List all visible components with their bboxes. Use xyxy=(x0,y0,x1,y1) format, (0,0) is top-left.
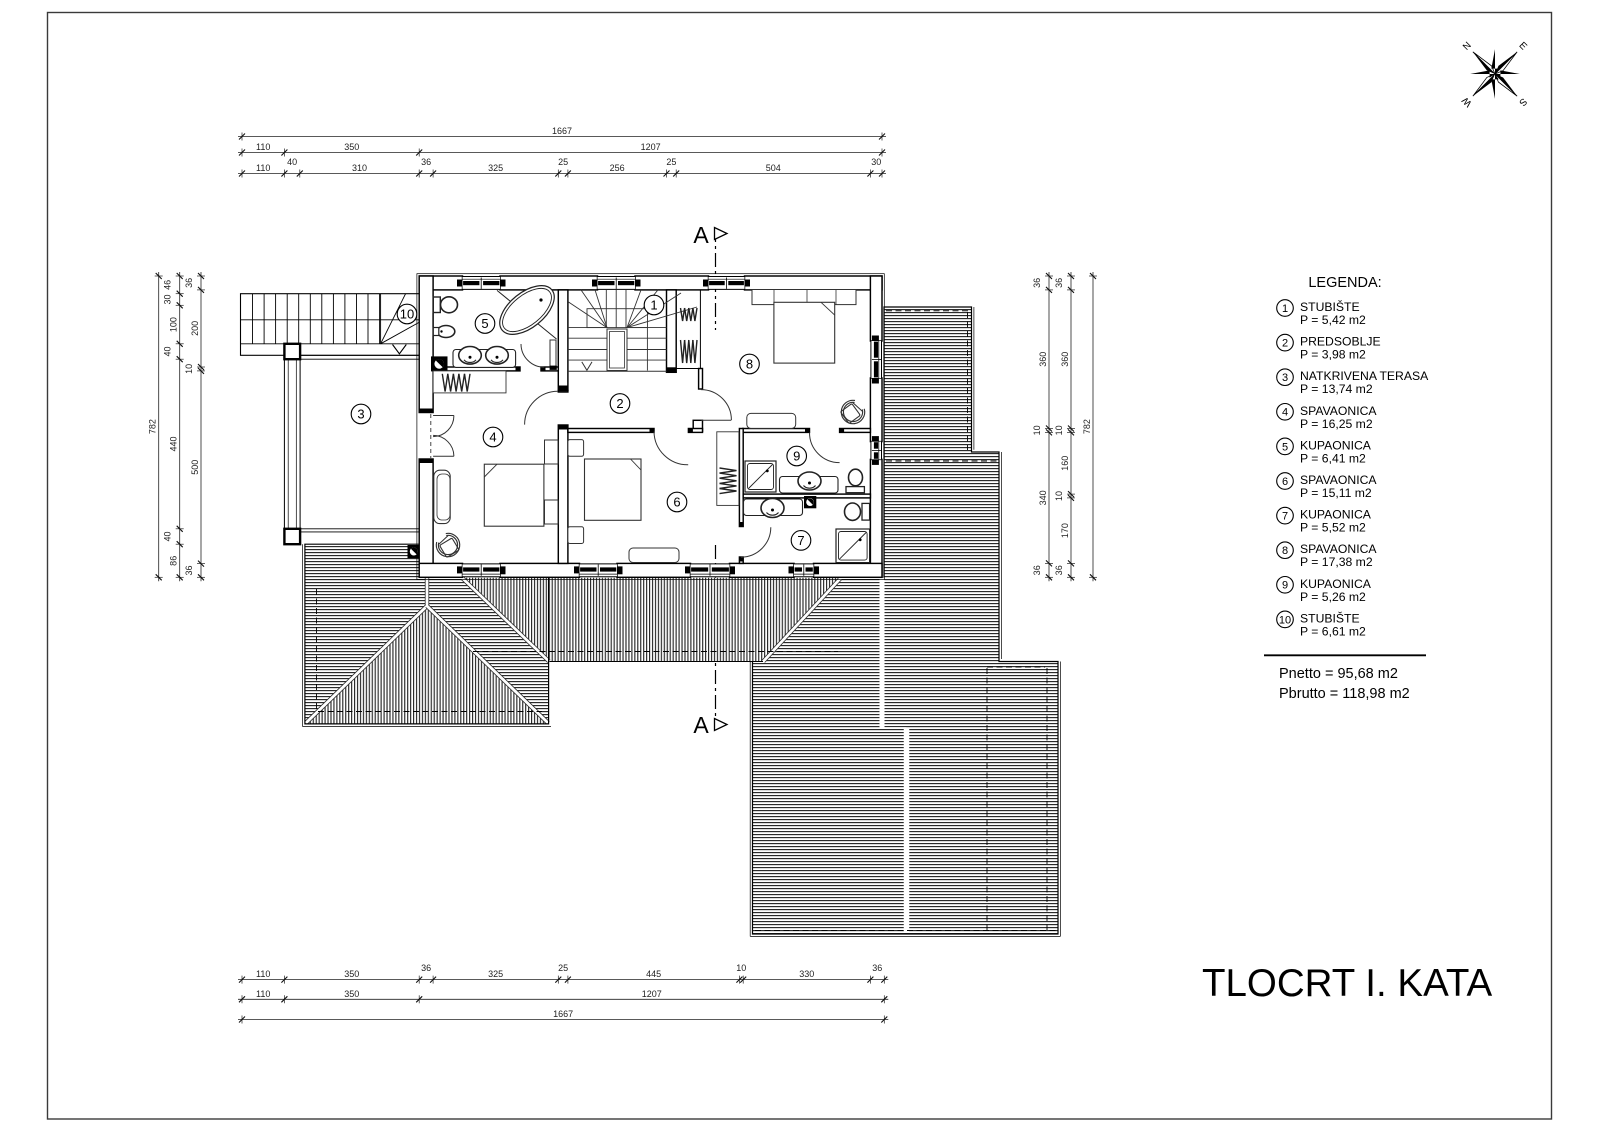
svg-text:10: 10 xyxy=(400,307,414,322)
svg-text:110: 110 xyxy=(256,989,270,999)
svg-text:3: 3 xyxy=(357,407,364,422)
svg-text:10: 10 xyxy=(736,963,746,973)
svg-text:500: 500 xyxy=(190,460,200,475)
svg-text:256: 256 xyxy=(610,163,625,173)
svg-text:10: 10 xyxy=(1032,425,1042,435)
svg-text:30: 30 xyxy=(163,294,173,304)
svg-text:782: 782 xyxy=(148,419,158,434)
svg-text:310: 310 xyxy=(352,163,367,173)
svg-text:3: 3 xyxy=(1282,372,1288,384)
svg-text:A: A xyxy=(693,712,709,738)
svg-text:25: 25 xyxy=(666,157,676,167)
svg-text:9: 9 xyxy=(1282,580,1288,592)
svg-text:36: 36 xyxy=(421,157,431,167)
svg-text:STUBIŠTE: STUBIŠTE xyxy=(1300,299,1360,314)
svg-text:10: 10 xyxy=(1279,614,1291,626)
svg-text:782: 782 xyxy=(1082,419,1092,434)
svg-text:445: 445 xyxy=(646,969,661,979)
svg-text:340: 340 xyxy=(1038,490,1048,505)
svg-text:36: 36 xyxy=(872,963,882,973)
svg-text:350: 350 xyxy=(344,989,359,999)
svg-text:P = 6,41 m2: P = 6,41 m2 xyxy=(1300,451,1366,465)
svg-text:36: 36 xyxy=(184,278,194,288)
svg-text:25: 25 xyxy=(558,157,568,167)
svg-text:36: 36 xyxy=(184,565,194,575)
svg-text:110: 110 xyxy=(256,142,270,152)
svg-text:P = 15,11 m2: P = 15,11 m2 xyxy=(1300,486,1372,500)
svg-text:Pbrutto = 118,98 m2: Pbrutto = 118,98 m2 xyxy=(1279,686,1410,702)
svg-text:PREDSOBLJE: PREDSOBLJE xyxy=(1300,335,1381,349)
svg-text:30: 30 xyxy=(871,157,881,167)
svg-text:1667: 1667 xyxy=(553,1009,573,1019)
svg-text:170: 170 xyxy=(1060,523,1070,538)
svg-text:350: 350 xyxy=(344,142,359,152)
svg-text:5: 5 xyxy=(481,316,488,331)
svg-text:350: 350 xyxy=(344,969,359,979)
svg-text:SPAVAONICA: SPAVAONICA xyxy=(1300,542,1377,556)
svg-text:440: 440 xyxy=(169,436,179,451)
svg-text:36: 36 xyxy=(1054,565,1064,575)
svg-text:110: 110 xyxy=(256,163,270,173)
svg-text:STUBIŠTE: STUBIŠTE xyxy=(1300,610,1360,625)
svg-text:40: 40 xyxy=(163,346,173,356)
svg-text:160: 160 xyxy=(1060,456,1070,471)
svg-text:8: 8 xyxy=(746,357,753,372)
svg-text:325: 325 xyxy=(488,163,503,173)
svg-text:KUPAONICA: KUPAONICA xyxy=(1300,577,1372,591)
svg-text:P = 13,74 m2: P = 13,74 m2 xyxy=(1300,382,1373,396)
svg-text:P = 3,98 m2: P = 3,98 m2 xyxy=(1300,348,1366,362)
svg-text:1: 1 xyxy=(1282,303,1288,315)
svg-text:KUPAONICA: KUPAONICA xyxy=(1300,508,1372,522)
svg-text:360: 360 xyxy=(1038,352,1048,367)
svg-text:4: 4 xyxy=(489,430,496,445)
svg-text:110: 110 xyxy=(256,969,270,979)
svg-text:1207: 1207 xyxy=(642,989,662,999)
svg-text:25: 25 xyxy=(558,963,568,973)
svg-text:4: 4 xyxy=(1282,407,1288,419)
svg-text:P = 5,26 m2: P = 5,26 m2 xyxy=(1300,590,1366,604)
svg-text:P = 5,42 m2: P = 5,42 m2 xyxy=(1300,313,1366,327)
svg-text:360: 360 xyxy=(1060,352,1070,367)
svg-text:LEGENDA:: LEGENDA: xyxy=(1308,275,1381,291)
svg-text:TLOCRT I. KATA: TLOCRT I. KATA xyxy=(1202,962,1493,1005)
svg-text:1207: 1207 xyxy=(641,142,661,152)
svg-text:NATKRIVENA TERASA: NATKRIVENA TERASA xyxy=(1300,369,1429,383)
svg-text:P = 16,25 m2: P = 16,25 m2 xyxy=(1300,417,1373,431)
svg-text:P = 5,52 m2: P = 5,52 m2 xyxy=(1300,521,1366,535)
svg-text:P = 17,38 m2: P = 17,38 m2 xyxy=(1300,555,1373,569)
svg-text:330: 330 xyxy=(799,969,814,979)
svg-text:9: 9 xyxy=(793,449,800,464)
svg-text:1667: 1667 xyxy=(552,126,572,136)
svg-text:36: 36 xyxy=(1054,278,1064,288)
svg-text:36: 36 xyxy=(421,963,431,973)
svg-text:100: 100 xyxy=(169,317,179,332)
svg-text:200: 200 xyxy=(190,321,200,336)
svg-text:KUPAONICA: KUPAONICA xyxy=(1300,438,1372,452)
svg-text:7: 7 xyxy=(1282,511,1288,523)
svg-text:10: 10 xyxy=(1054,425,1064,435)
svg-text:325: 325 xyxy=(488,969,503,979)
svg-text:504: 504 xyxy=(766,163,781,173)
svg-text:6: 6 xyxy=(673,495,680,510)
svg-text:7: 7 xyxy=(797,533,804,548)
svg-text:2: 2 xyxy=(616,396,623,411)
svg-text:40: 40 xyxy=(163,531,173,541)
svg-text:6: 6 xyxy=(1282,476,1288,488)
svg-text:Pnetto = 95,68 m2: Pnetto = 95,68 m2 xyxy=(1279,666,1398,682)
svg-text:SPAVAONICA: SPAVAONICA xyxy=(1300,404,1377,418)
svg-text:36: 36 xyxy=(1032,565,1042,575)
svg-text:2: 2 xyxy=(1282,338,1288,350)
svg-text:A: A xyxy=(693,222,709,248)
svg-text:1: 1 xyxy=(650,298,657,313)
svg-text:8: 8 xyxy=(1282,545,1288,557)
svg-text:SPAVAONICA: SPAVAONICA xyxy=(1300,473,1377,487)
svg-text:46: 46 xyxy=(163,280,173,290)
svg-text:P = 6,61 m2: P = 6,61 m2 xyxy=(1300,624,1366,638)
svg-text:86: 86 xyxy=(169,556,179,566)
svg-text:10: 10 xyxy=(1054,491,1064,501)
svg-text:10: 10 xyxy=(184,364,194,374)
svg-text:36: 36 xyxy=(1032,278,1042,288)
svg-text:5: 5 xyxy=(1282,441,1288,453)
svg-text:40: 40 xyxy=(287,157,297,167)
